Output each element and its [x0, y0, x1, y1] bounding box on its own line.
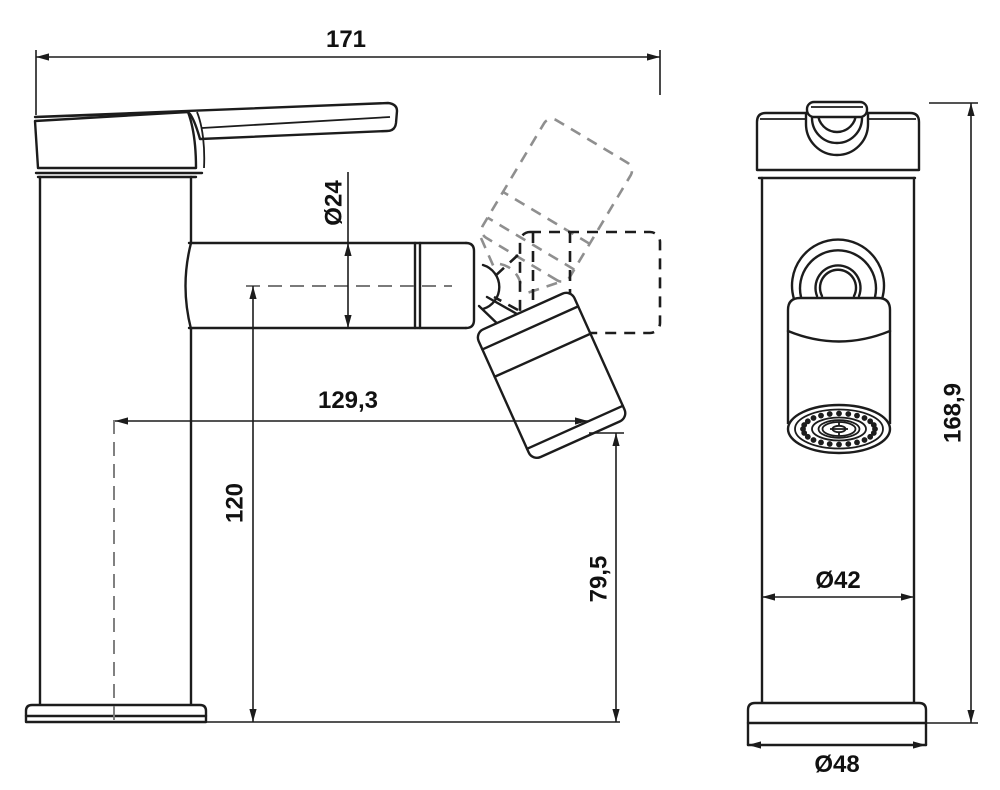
technical-drawing-page: 171 Ø24 129,3 120 79,5	[0, 0, 1000, 790]
faucet-dimension-drawing: 171 Ø24 129,3 120 79,5	[0, 0, 1000, 790]
dim-base-diameter: Ø48	[814, 751, 859, 778]
dim-total-height: 168,9	[939, 383, 966, 443]
base-side	[26, 705, 206, 722]
front-view: Ø42 Ø48 168,9	[748, 102, 978, 778]
nozzle-swivel-arcs	[792, 240, 884, 299]
cap-front	[757, 113, 919, 170]
side-view: 171 Ø24 129,3 120 79,5	[26, 26, 660, 722]
dim-reach: 129,3	[318, 387, 378, 414]
dim-spout-height: 120	[221, 483, 248, 523]
spray-face	[788, 405, 890, 453]
nozzle-front	[788, 298, 890, 453]
base-front	[748, 703, 926, 745]
faucet-front-outline	[748, 102, 926, 745]
handle-hub	[35, 112, 196, 168]
nozzle-side	[475, 290, 628, 461]
dim-spout-diameter: Ø24	[320, 180, 347, 226]
dim-total-length: 171	[326, 26, 366, 53]
dim-outlet-height: 79,5	[585, 556, 612, 603]
dim-body-diameter: Ø42	[815, 567, 860, 594]
